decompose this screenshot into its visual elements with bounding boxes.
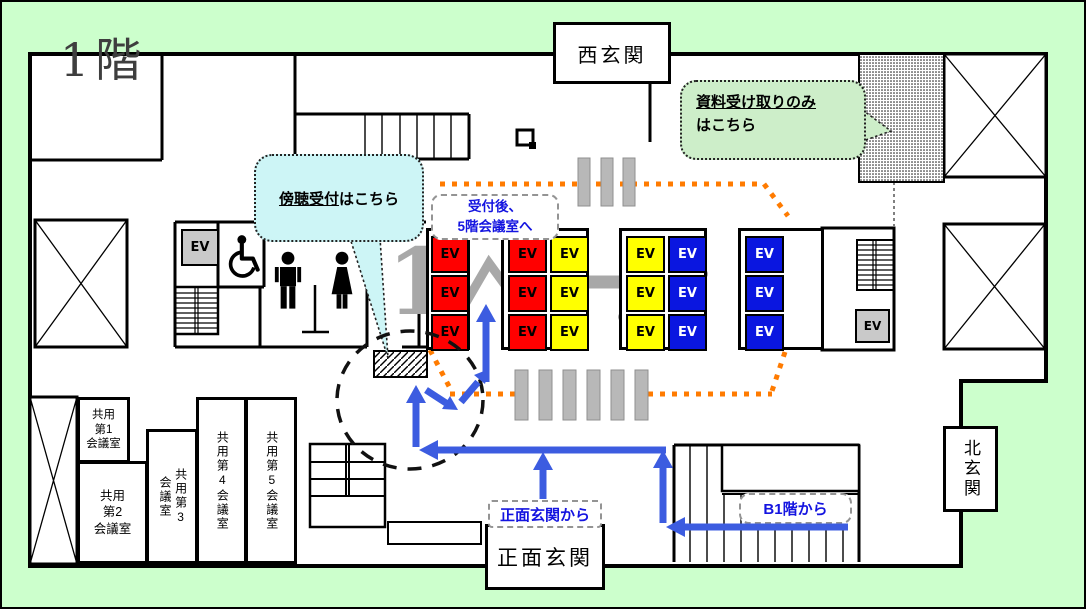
reception-desk (374, 351, 427, 377)
document-pickup-highlight: 資料受け取りのみ (696, 92, 850, 115)
floor-plan: 1 1階 西玄関 北玄関 正面玄関 (0, 0, 1086, 609)
elevator-service-left: EV (181, 229, 219, 266)
shared-meeting-room-2: 共用 第2 会議室 (77, 461, 148, 564)
after-reception-callout: 受付後、 5階会議室へ (431, 194, 559, 240)
door-symbol (517, 130, 536, 149)
after-reception-line1: 受付後、 (468, 197, 522, 217)
elevator-red: EV (431, 236, 469, 273)
elevator-yellow: EV (626, 314, 665, 351)
entrance-counter (387, 521, 482, 545)
elevator-yellow: EV (626, 236, 665, 273)
elevator-blue: EV (745, 314, 784, 351)
floor-title: 1階 (60, 24, 147, 90)
document-pickup-bubble: 資料受け取りのみ はこちら (680, 80, 866, 160)
elevator-red: EV (431, 275, 469, 312)
north-entrance-label: 北玄関 (943, 426, 998, 512)
elevator-bank-4: EV EV EV (738, 228, 824, 350)
elevator-blue: EV (668, 236, 707, 273)
womens-restroom-icon (324, 251, 360, 315)
elevator-blue: EV (668, 275, 707, 312)
from-b1-label: B1階から (739, 493, 852, 524)
audience-reception-highlight: 傍聴受付 (279, 191, 339, 208)
elevator-yellow: EV (550, 314, 589, 351)
after-reception-line2: 5階会議室へ (457, 217, 532, 237)
elevator-red: EV (508, 236, 547, 273)
document-pickup-rest: はこちら (696, 117, 756, 134)
elevator-yellow: EV (550, 236, 589, 273)
elevator-blue: EV (745, 236, 784, 273)
from-main-entrance-label: 正面玄関から (488, 500, 602, 528)
elevator-service-right: EV (855, 309, 890, 343)
elevator-bank-3: EV EV EV EV EV EV (619, 228, 707, 350)
shared-meeting-room-1: 共用 第1 会議室 (77, 397, 130, 463)
shared-meeting-room-3: 共用第3 会議室 (146, 429, 198, 564)
audience-reception-rest: はこちら (339, 191, 399, 208)
elevator-red: EV (508, 275, 547, 312)
audience-reception-bubble: 傍聴受付はこちら (254, 154, 424, 242)
elevator-red: EV (431, 314, 469, 351)
elevator-bank-1: EV EV EV (426, 228, 470, 350)
elevator-blue: EV (668, 314, 707, 351)
west-entrance-label: 西玄関 (553, 22, 671, 84)
wheelchair-icon (226, 231, 264, 283)
elevator-yellow: EV (626, 275, 665, 312)
main-entrance-label: 正面玄関 (485, 524, 605, 590)
elevator-bank-2: EV EV EV EV EV EV (501, 228, 589, 350)
shared-meeting-room-4: 共用第4会議室 (196, 397, 247, 564)
elevator-yellow: EV (550, 275, 589, 312)
elevator-red: EV (508, 314, 547, 351)
elevator-blue: EV (745, 275, 784, 312)
shared-meeting-room-5: 共用第5会議室 (245, 397, 297, 564)
mens-restroom-icon (272, 251, 304, 315)
